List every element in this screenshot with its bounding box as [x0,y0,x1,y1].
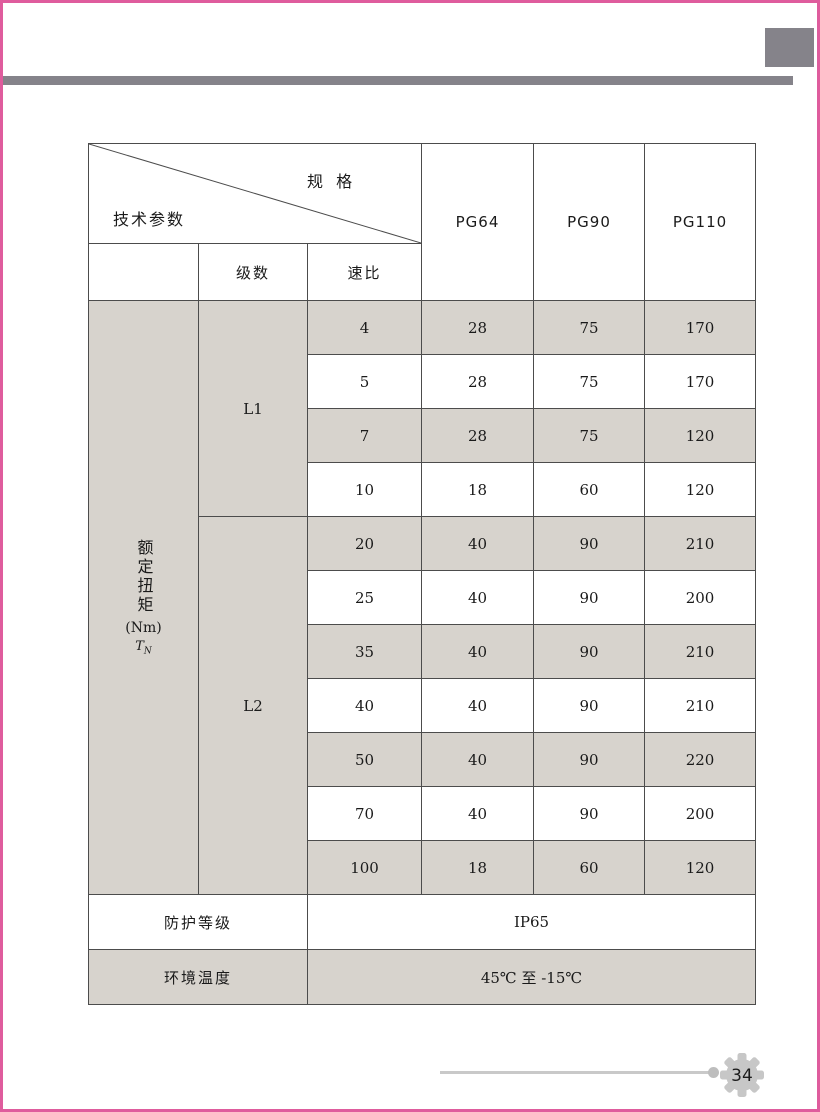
footer-value-protection: IP65 [308,895,756,950]
value-cell: 120 [645,463,756,517]
ratio-cell: 50 [308,733,422,787]
ratio-cell: 20 [308,517,422,571]
col-header-pg90: PG90 [534,144,645,301]
accent-bar [3,76,793,85]
value-cell: 60 [534,463,645,517]
value-cell: 170 [645,355,756,409]
value-cell: 40 [422,787,534,841]
value-cell: 40 [422,625,534,679]
value-cell: 75 [534,355,645,409]
stage-header: 级数 [199,244,308,301]
value-cell: 90 [534,517,645,571]
ratio-cell: 35 [308,625,422,679]
ratio-cell: 7 [308,409,422,463]
value-cell: 90 [534,733,645,787]
value-cell: 90 [534,679,645,733]
value-cell: 170 [645,301,756,355]
value-cell: 210 [645,625,756,679]
corner-label-params: 技术参数 [113,206,185,230]
value-cell: 60 [534,841,645,895]
value-cell: 120 [645,841,756,895]
value-cell: 28 [422,355,534,409]
value-cell: 75 [534,409,645,463]
col-header-pg110: PG110 [645,144,756,301]
value-cell: 210 [645,517,756,571]
value-cell: 120 [645,409,756,463]
torque-vertical-text: 额定扭矩 [136,539,152,615]
torque-unit: (Nm) [125,620,161,636]
value-cell: 210 [645,679,756,733]
line-end-dot [708,1067,719,1078]
value-cell: 40 [422,733,534,787]
spec-table: 规 格 技术参数 PG64 PG90 PG110 级数 速比 额定扭矩 (Nm)… [88,143,756,1005]
page-frame: 规 格 技术参数 PG64 PG90 PG110 级数 速比 额定扭矩 (Nm)… [0,0,820,1112]
value-cell: 40 [422,571,534,625]
value-cell: 220 [645,733,756,787]
corner-label-spec: 规 格 [307,168,356,192]
value-cell: 90 [534,625,645,679]
value-cell: 40 [422,679,534,733]
col-header-pg64: PG64 [422,144,534,301]
torque-label-cell: 额定扭矩 (Nm) TN [89,301,199,895]
stage-cell-l1: L1 [199,301,308,517]
value-cell: 200 [645,787,756,841]
footer-value-temperature: 45℃ 至 -15℃ [308,950,756,1005]
torque-symbol: TN [135,639,152,657]
value-cell: 18 [422,841,534,895]
footer-label-protection: 防护等级 [89,895,308,950]
ratio-cell: 40 [308,679,422,733]
page-footer-line [440,1071,712,1074]
stage-cell-l2: L2 [199,517,308,895]
value-cell: 90 [534,571,645,625]
ratio-cell: 70 [308,787,422,841]
gear-icon: 34 [719,1052,765,1098]
torque-label: 额定扭矩 (Nm) TN [89,539,198,657]
ratio-cell: 25 [308,571,422,625]
value-cell: 28 [422,301,534,355]
value-cell: 200 [645,571,756,625]
empty-header-cell [89,244,199,301]
footer-label-temperature: 环境温度 [89,950,308,1005]
ratio-cell: 10 [308,463,422,517]
value-cell: 90 [534,787,645,841]
value-cell: 18 [422,463,534,517]
value-cell: 28 [422,409,534,463]
page-number: 34 [731,1066,753,1086]
corner-cell: 规 格 技术参数 [89,144,422,244]
value-cell: 75 [534,301,645,355]
ratio-header: 速比 [308,244,422,301]
ratio-cell: 5 [308,355,422,409]
value-cell: 40 [422,517,534,571]
accent-square [765,28,814,67]
ratio-cell: 100 [308,841,422,895]
ratio-cell: 4 [308,301,422,355]
